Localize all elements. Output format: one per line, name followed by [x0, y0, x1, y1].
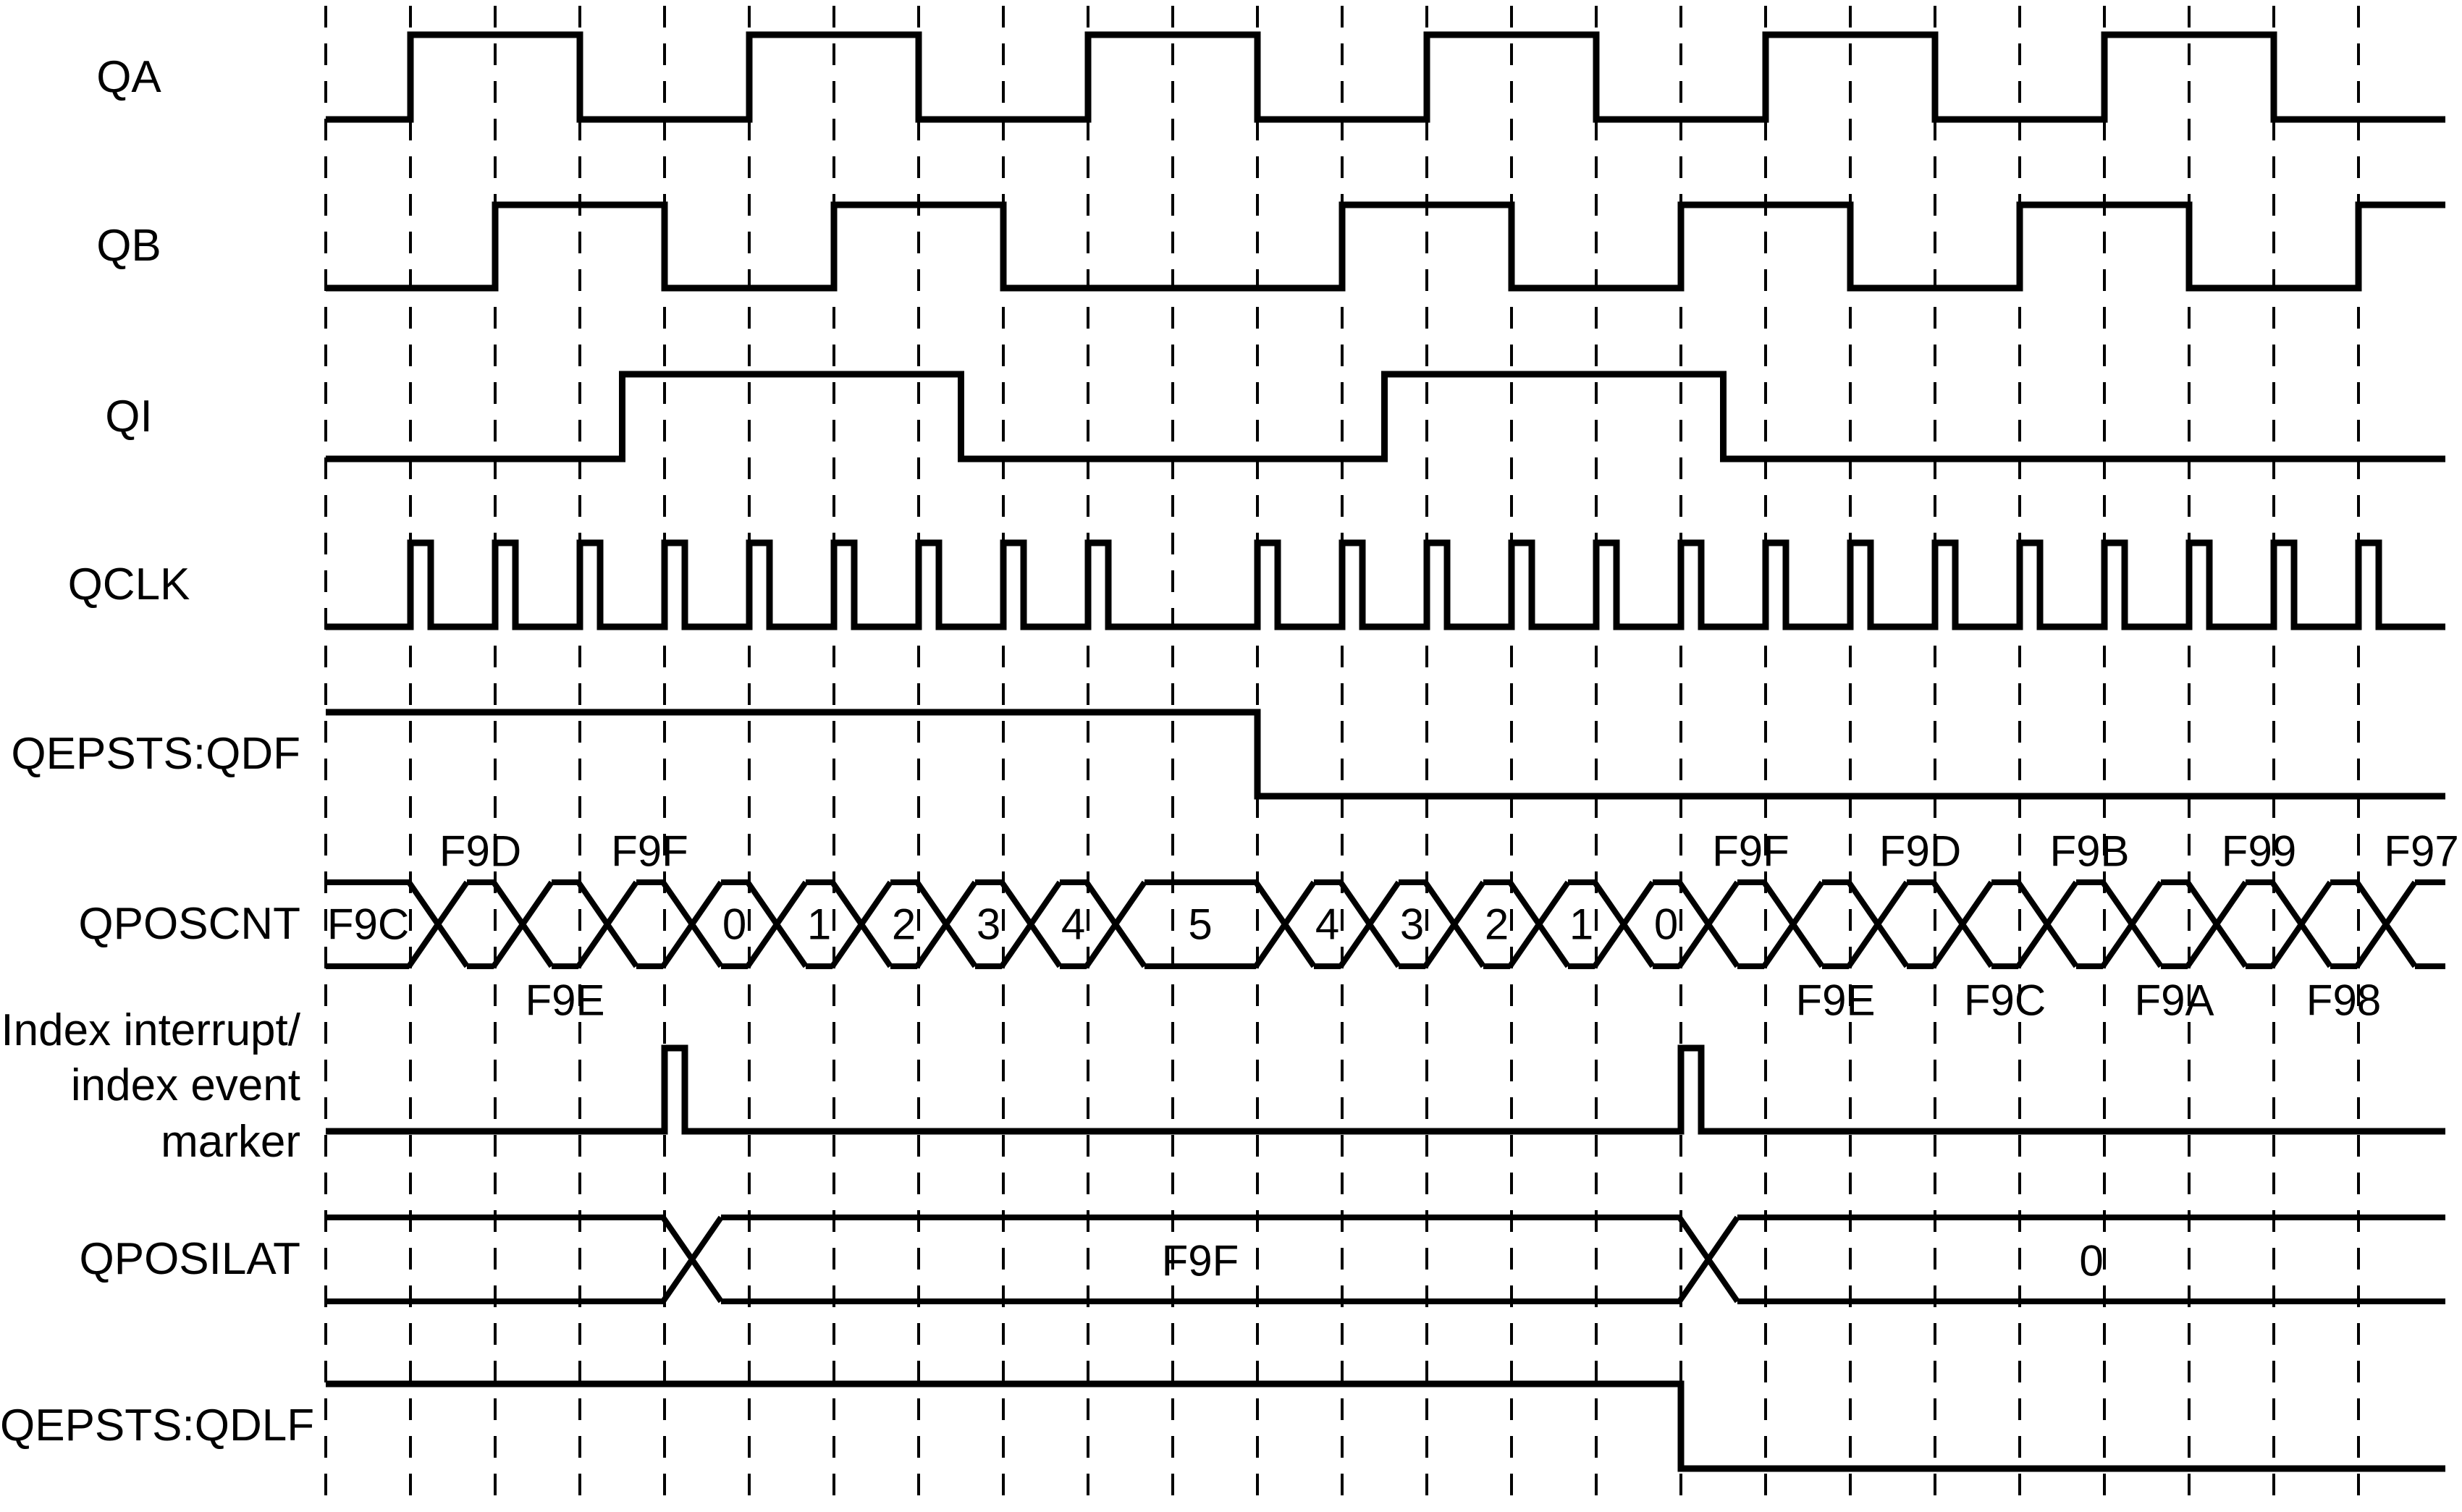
qposcnt-bus-value: F9E — [525, 976, 604, 1025]
qposcnt-bus-value: F9D — [1879, 827, 1961, 876]
waveform-qdlf — [326, 1384, 2445, 1469]
qposilat-bus-value: 0 — [2079, 1237, 2103, 1285]
label-qa: QA — [0, 50, 258, 105]
label-qb: QB — [0, 219, 258, 274]
qposcnt-bus-value: F9D — [439, 827, 521, 876]
waveform-qclk — [326, 543, 2445, 627]
qposcnt-bus-value: 3 — [1400, 900, 1424, 949]
qposcnt-bus-value: 1 — [807, 900, 831, 949]
qposcnt-bus-value: 4 — [1315, 900, 1339, 949]
label-qdf: QEPSTS:QDF — [0, 727, 300, 782]
qposcnt-bus-value: F9C — [1964, 976, 2046, 1025]
qposcnt-bus-value: 4 — [1061, 900, 1085, 949]
qposcnt-bus-value: F99 — [2222, 827, 2296, 876]
waveform-qdf — [326, 712, 2445, 796]
qposcnt-bus-value: F9C — [327, 900, 409, 949]
timing-diagram-stage: F9CF9DF9EF9F01234543210F9FF9EF9DF9CF9BF9… — [0, 0, 2462, 1512]
label-qposilat: QPOSILAT — [0, 1232, 300, 1287]
label-qposcnt: QPOSCNT — [0, 897, 300, 952]
qposcnt-bus-value: 3 — [977, 900, 1000, 949]
qposcnt-bus-value: 0 — [1654, 900, 1678, 949]
label-qdlf: QEPSTS:QDLF — [0, 1398, 300, 1453]
qposcnt-bus-value: F9B — [2049, 827, 2129, 876]
qposcnt-bus-value: F9A — [2134, 976, 2214, 1025]
waveform-qa — [326, 35, 2445, 119]
label-index-line1: Index interrupt/ — [0, 1003, 300, 1058]
waveform-qb — [326, 205, 2445, 288]
qposcnt-bus-value: 1 — [1569, 900, 1593, 949]
label-index-line2: index event — [0, 1058, 300, 1113]
label-qclk: QCLK — [0, 557, 258, 612]
label-qi: QI — [0, 389, 258, 444]
qposcnt-bus-value: F97 — [2384, 827, 2458, 876]
waveform-index-marker — [326, 1048, 2445, 1131]
qposcnt-bus-value: F98 — [2306, 976, 2381, 1025]
qposcnt-bus-value: F9F — [611, 827, 688, 876]
label-index-line3: marker — [0, 1115, 300, 1170]
waveform-qi — [326, 374, 2445, 459]
qposcnt-bus-value: 2 — [1485, 900, 1509, 949]
qposcnt-bus-value: F9E — [1795, 976, 1875, 1025]
qposcnt-bus-value: 0 — [722, 900, 746, 949]
qposcnt-bus-value: 5 — [1188, 900, 1212, 949]
qposilat-bus-value: F9F — [1162, 1237, 1239, 1285]
timing-diagram: F9CF9DF9EF9F01234543210F9FF9EF9DF9CF9BF9… — [0, 0, 2462, 1512]
qposcnt-bus-value: 2 — [892, 900, 916, 949]
qposcnt-bus-value: F9F — [1712, 827, 1789, 876]
